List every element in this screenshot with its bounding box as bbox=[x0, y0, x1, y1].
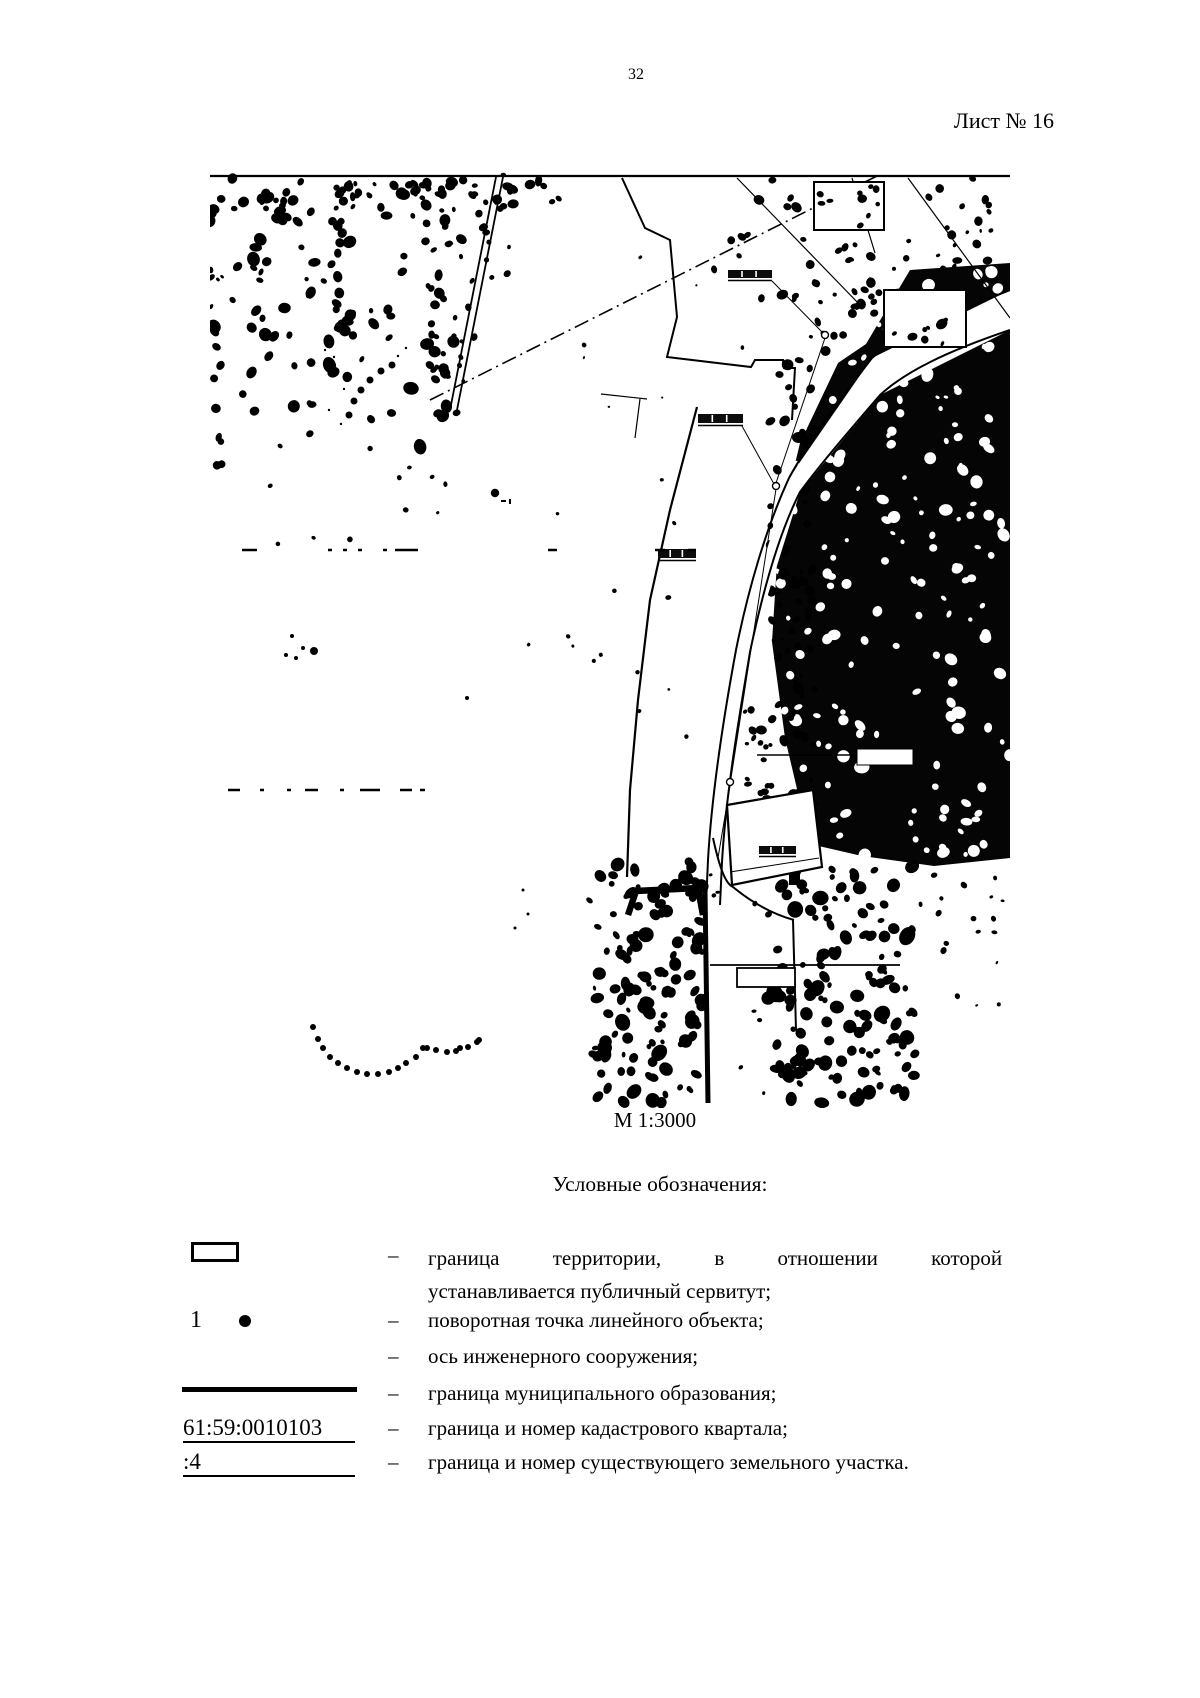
legend-item-text: граница и номер кадастрового квартала; bbox=[428, 1415, 1048, 1442]
municipal-boundary-line-symbol bbox=[182, 1387, 357, 1392]
page-number: 32 bbox=[576, 66, 696, 84]
legend-row-territory-boundary: – граница территории, в отношении которо… bbox=[170, 1242, 1070, 1308]
document-page: 32 Лист № 16 М 1:3000 Условные обозначен… bbox=[0, 0, 1200, 1698]
legend-row-turning-point: 1 – поворотная точка линейного объекта; bbox=[170, 1307, 1070, 1334]
legend-item-text: граница муниципального образования; bbox=[428, 1380, 1048, 1407]
legend-text-line: устанавливается публичный сервитут; bbox=[428, 1275, 1048, 1308]
legend-row-cadastral-quarter: 61:59:0010103 – граница и номер кадастро… bbox=[170, 1415, 1070, 1443]
legend-row-existing-parcel: :4 – граница и номер существующего земел… bbox=[170, 1449, 1070, 1477]
turning-point-number: 1 bbox=[190, 1307, 202, 1333]
turning-point-dot-icon bbox=[239, 1315, 251, 1327]
parcel-number: :4 bbox=[183, 1449, 355, 1477]
legend-row-municipal-boundary: – граница муниципального образования; bbox=[170, 1380, 1070, 1407]
legend-row-engineering-axis: – ось инженерного сооружения; bbox=[170, 1343, 1070, 1370]
cadastral-quarter-number: 61:59:0010103 bbox=[183, 1415, 355, 1443]
territory-boundary-rect-symbol bbox=[191, 1242, 239, 1262]
sheet-number-label: Лист № 16 bbox=[954, 108, 1054, 134]
legend-title: Условные обозначения: bbox=[420, 1172, 900, 1197]
legend-dash: – bbox=[388, 1449, 428, 1476]
legend-dash: – bbox=[388, 1307, 428, 1334]
legend-dash: – bbox=[388, 1415, 428, 1442]
cadastral-map-image bbox=[210, 158, 1010, 1108]
legend-item-text: ось инженерного сооружения; bbox=[428, 1343, 1048, 1370]
legend-item-text: поворотная точка линейного объекта; bbox=[428, 1307, 1048, 1334]
legend-item-text: граница и номер существующего земельного… bbox=[428, 1449, 1048, 1476]
map-scale-label: М 1:3000 bbox=[560, 1108, 750, 1133]
legend-text-line: граница территории, в отношении которой bbox=[428, 1242, 1048, 1275]
legend-dash: – bbox=[388, 1380, 428, 1407]
legend-item-text: граница территории, в отношении которой … bbox=[428, 1242, 1048, 1308]
legend-dash: – bbox=[388, 1242, 428, 1269]
legend-dash: – bbox=[388, 1343, 428, 1370]
